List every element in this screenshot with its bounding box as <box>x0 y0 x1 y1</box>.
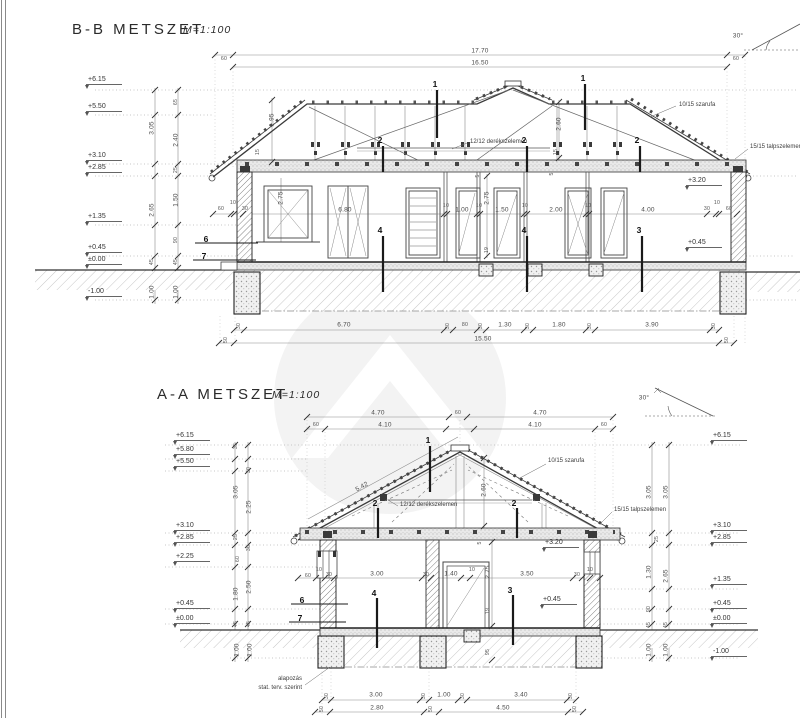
annotation-text: 15/15 talpszelemen <box>614 507 666 513</box>
elevation-mark: +3.20 <box>543 539 579 548</box>
elevation-flag-icon <box>173 562 177 566</box>
dimension-text: 1.80 <box>233 587 240 600</box>
elevation-mark: +6.15 <box>174 432 210 441</box>
dimension-text: 30 <box>587 323 593 329</box>
annotation-text: stat. terv. szerint <box>258 685 302 691</box>
dimension-text: 2.50 <box>246 580 253 593</box>
elevation-flag-icon <box>710 543 714 547</box>
architectural-drawing-page: B-B METSZET M=1:100 A-A METSZET M=1:100 … <box>0 0 800 718</box>
dimension-text: 30 <box>568 693 574 699</box>
dimension-text: 25 <box>233 534 239 540</box>
reference-label: 1 <box>426 435 431 445</box>
dimension-text: 30 <box>326 572 332 578</box>
dimension-text: 10 <box>469 567 475 573</box>
elevation-mark: -1.00 <box>711 648 747 657</box>
dimension-text: 3.40 <box>514 692 527 699</box>
dimension-text: 80 <box>462 322 468 328</box>
dimension-text: 30 <box>574 572 580 578</box>
dimension-text: 2.75 <box>278 191 285 204</box>
dimension-text: 30 <box>421 693 427 699</box>
dimension-text: 30 <box>445 323 451 329</box>
dimension-text: 4.70 <box>371 410 384 417</box>
dimension-text: 2.40 <box>173 133 180 146</box>
elevation-mark: +2.25 <box>174 553 210 562</box>
dimension-text: 60 <box>313 422 319 428</box>
dimension-text: 3.50 <box>520 571 533 578</box>
elevation-mark: +2.85 <box>174 534 210 543</box>
annotation-text: 10/15 szarufa <box>548 458 584 464</box>
dimension-text: 60 <box>726 206 732 212</box>
dimension-text: 2.65 <box>149 203 156 216</box>
dimension-text: 2.75 <box>484 191 491 204</box>
elevation-mark: -1.00 <box>86 288 122 297</box>
dimension-text: 60 <box>455 410 461 416</box>
dimension-text: 90 <box>646 606 652 612</box>
dimension-text: 45 <box>233 621 239 627</box>
elevation-flag-icon <box>85 112 89 116</box>
reference-label: 6 <box>204 234 209 244</box>
dimension-text: 30 <box>704 206 710 212</box>
dimension-text: 90 <box>173 237 179 243</box>
elevation-mark: +1.35 <box>711 576 747 585</box>
elevation-mark: +3.10 <box>711 522 747 531</box>
elevation-mark: ±0.00 <box>86 256 122 265</box>
dimension-text: 95 <box>485 649 491 655</box>
dimension-text: 2.60 <box>556 117 563 130</box>
dimension-text: 4.50 <box>496 705 509 712</box>
elevation-mark: +3.20 <box>686 177 722 186</box>
dimension-text: 45 <box>246 621 252 627</box>
dimension-text: 30° <box>639 395 649 402</box>
dimension-text: 30 <box>423 572 429 578</box>
dimension-text: 50 <box>223 337 229 343</box>
dimension-text: 1.95 <box>269 113 276 126</box>
elevation-flag-icon <box>85 85 89 89</box>
reference-label: 7 <box>298 613 303 623</box>
dimension-text: 60 <box>218 206 224 212</box>
dimension-text: 3.00 <box>369 692 382 699</box>
elevation-flag-icon <box>540 605 544 609</box>
dimension-text: 65 <box>173 99 179 105</box>
dimension-text: 30 <box>525 323 531 329</box>
dimension-text: 2.25 <box>246 500 253 513</box>
dimension-text: 4.70 <box>533 410 546 417</box>
dimension-text: 2.75 <box>485 565 492 578</box>
elevation-flag-icon <box>173 609 177 613</box>
elevation-flag-icon <box>85 222 89 226</box>
reference-label: 3 <box>637 225 642 235</box>
elevation-mark: +3.10 <box>86 152 122 161</box>
dimension-text: 1.00 <box>646 643 653 656</box>
reference-label: 2 <box>512 498 517 508</box>
elevation-flag-icon <box>173 543 177 547</box>
dimension-text: 30 <box>236 323 242 329</box>
elevation-mark: +6.15 <box>711 432 747 441</box>
dimension-text: 3.05 <box>646 485 653 498</box>
dimension-text: 30 <box>711 323 717 329</box>
dimension-text: 3.90 <box>645 322 658 329</box>
dimension-text: 2.80 <box>370 705 383 712</box>
reference-label: 7 <box>202 251 207 261</box>
dimension-text: 6.80 <box>338 207 351 214</box>
elevation-mark: +5.50 <box>174 458 210 467</box>
dimension-text: 25 <box>173 167 179 173</box>
dimension-text: 1.50 <box>173 193 180 206</box>
dimension-text: 1.00 <box>173 285 180 298</box>
dimension-text: 30 <box>324 693 330 699</box>
reference-label: 2 <box>635 135 640 145</box>
dimension-text: 50 <box>319 706 325 712</box>
dimension-text: 30 <box>242 206 248 212</box>
dimension-text: 60 <box>601 422 607 428</box>
dimension-text: 5 <box>475 174 481 177</box>
elevation-flag-icon <box>85 297 89 301</box>
elevation-flag-icon <box>542 548 546 552</box>
dimension-text: 5 <box>549 172 555 175</box>
elevation-flag-icon <box>710 624 714 628</box>
dimension-text: 19 <box>484 247 490 253</box>
dimension-text: 15 <box>553 149 559 155</box>
dimension-text: 10 <box>316 567 322 573</box>
dimension-text: 1.30 <box>498 322 511 329</box>
dimension-text: 10 <box>522 203 528 209</box>
reference-label: 3 <box>508 585 513 595</box>
dimension-text: 4.10 <box>378 422 391 429</box>
elevation-flag-icon <box>173 441 177 445</box>
dimension-text: 30 <box>246 467 252 473</box>
reference-label: 1 <box>581 73 586 83</box>
reference-label: 1 <box>433 79 438 89</box>
dimension-text: 6.70 <box>337 322 350 329</box>
dimension-text: 3.05 <box>663 485 670 498</box>
section-scale-aa: M=1:100 <box>272 389 320 401</box>
dimension-text: 60 <box>235 556 241 562</box>
dimension-text: 50 <box>428 706 434 712</box>
reference-label: 2 <box>373 498 378 508</box>
dimension-text: 60 <box>733 56 739 62</box>
elevation-mark: +0.45 <box>541 596 577 605</box>
dimension-text: 1.80 <box>552 322 565 329</box>
dimension-text: 35 <box>233 443 239 449</box>
dimension-text: 45 <box>149 259 155 265</box>
drawing-text-layer: B-B METSZET M=1:100 A-A METSZET M=1:100 … <box>0 0 800 718</box>
annotation-text: alapozás <box>278 676 302 682</box>
elevation-flag-icon <box>685 248 689 252</box>
elevation-mark: +1.35 <box>86 213 122 222</box>
dimension-text: 16.50 <box>471 60 488 67</box>
reference-label: 6 <box>300 595 305 605</box>
dimension-text: 17.70 <box>471 48 488 55</box>
elevation-mark: +3.10 <box>174 522 210 531</box>
annotation-text: 12/12 derékszelemen <box>400 502 457 508</box>
dimension-text: 60 <box>221 56 227 62</box>
elevation-flag-icon <box>685 186 689 190</box>
elevation-mark: +5.80 <box>174 446 210 455</box>
dimension-text: 1.30 <box>646 565 653 578</box>
dimension-text: 10 <box>230 200 236 206</box>
dimension-text: 30 <box>246 545 252 551</box>
dimension-text: 45 <box>663 622 669 628</box>
elevation-mark: +5.50 <box>86 103 122 112</box>
elevation-mark: ±0.00 <box>711 615 747 624</box>
elevation-flag-icon <box>173 624 177 628</box>
dimension-text: 1.00 <box>455 207 468 214</box>
elevation-flag-icon <box>710 609 714 613</box>
dimension-text: 2.00 <box>549 207 562 214</box>
elevation-flag-icon <box>85 265 89 269</box>
dimension-text: 10 <box>587 567 593 573</box>
elevation-flag-icon <box>173 467 177 471</box>
reference-label: 4 <box>522 225 527 235</box>
dimension-text: 4.10 <box>528 422 541 429</box>
dimension-text: 10 <box>443 203 449 209</box>
elevation-flag-icon <box>710 657 714 661</box>
elevation-flag-icon <box>85 173 89 177</box>
dimension-text: 30 <box>460 693 466 699</box>
elevation-mark: ±0.00 <box>174 615 210 624</box>
dimension-text: 3.05 <box>149 121 156 134</box>
dimension-text: 50 <box>724 337 730 343</box>
dimension-text: 45 <box>646 622 652 628</box>
dimension-text: 1.00 <box>247 643 254 656</box>
dimension-text: 15 <box>255 149 261 155</box>
elevation-flag-icon <box>710 441 714 445</box>
section-title-aa: A-A METSZET <box>157 386 288 403</box>
dimension-text: 1.00 <box>663 643 670 656</box>
dimension-text: 2.60 <box>481 483 488 496</box>
reference-label: 2 <box>378 135 383 145</box>
dimension-text: 25 <box>654 536 660 542</box>
dimension-text: 10 <box>714 200 720 206</box>
dimension-text: 60 <box>305 573 311 579</box>
reference-label: 4 <box>378 225 383 235</box>
elevation-mark: +0.45 <box>174 600 210 609</box>
dimension-text: 4.00 <box>641 207 654 214</box>
elevation-mark: +0.45 <box>86 244 122 253</box>
elevation-mark: +0.45 <box>686 239 722 248</box>
dimension-text: 15.50 <box>474 336 491 343</box>
dimension-text: 1.00 <box>149 285 156 298</box>
dimension-text: 3.00 <box>370 571 383 578</box>
elevation-mark: +2.85 <box>711 534 747 543</box>
dimension-text: 1.50 <box>495 207 508 214</box>
elevation-mark: +6.15 <box>86 76 122 85</box>
dimension-text: 5.42 <box>354 481 369 494</box>
dimension-text: 50 <box>572 706 578 712</box>
section-scale-bb: M=1:100 <box>183 24 231 36</box>
dimension-text: 1.00 <box>234 643 241 656</box>
dimension-text: 10 <box>585 203 591 209</box>
dimension-text: 3.05 <box>233 485 240 498</box>
elevation-mark: +0.45 <box>711 600 747 609</box>
reference-label: 4 <box>372 588 377 598</box>
annotation-text: 12/12 derékszelemen <box>470 139 527 145</box>
elevation-mark: +2.85 <box>86 164 122 173</box>
dimension-text: 19 <box>485 608 491 614</box>
annotation-text: 15/15 talpszelemen <box>750 144 800 150</box>
dimension-text: 1.00 <box>437 692 450 699</box>
dimension-text: 30° <box>733 33 743 40</box>
dimension-text: 2.65 <box>663 569 670 582</box>
elevation-flag-icon <box>710 585 714 589</box>
dimension-text: 10 <box>476 203 482 209</box>
dimension-text: 5 <box>477 541 483 544</box>
dimension-text: 45 <box>173 259 179 265</box>
dimension-text: 1.40 <box>444 571 457 578</box>
dimension-text: 30 <box>478 323 484 329</box>
annotation-text: 10/15 szarufa <box>679 102 715 108</box>
